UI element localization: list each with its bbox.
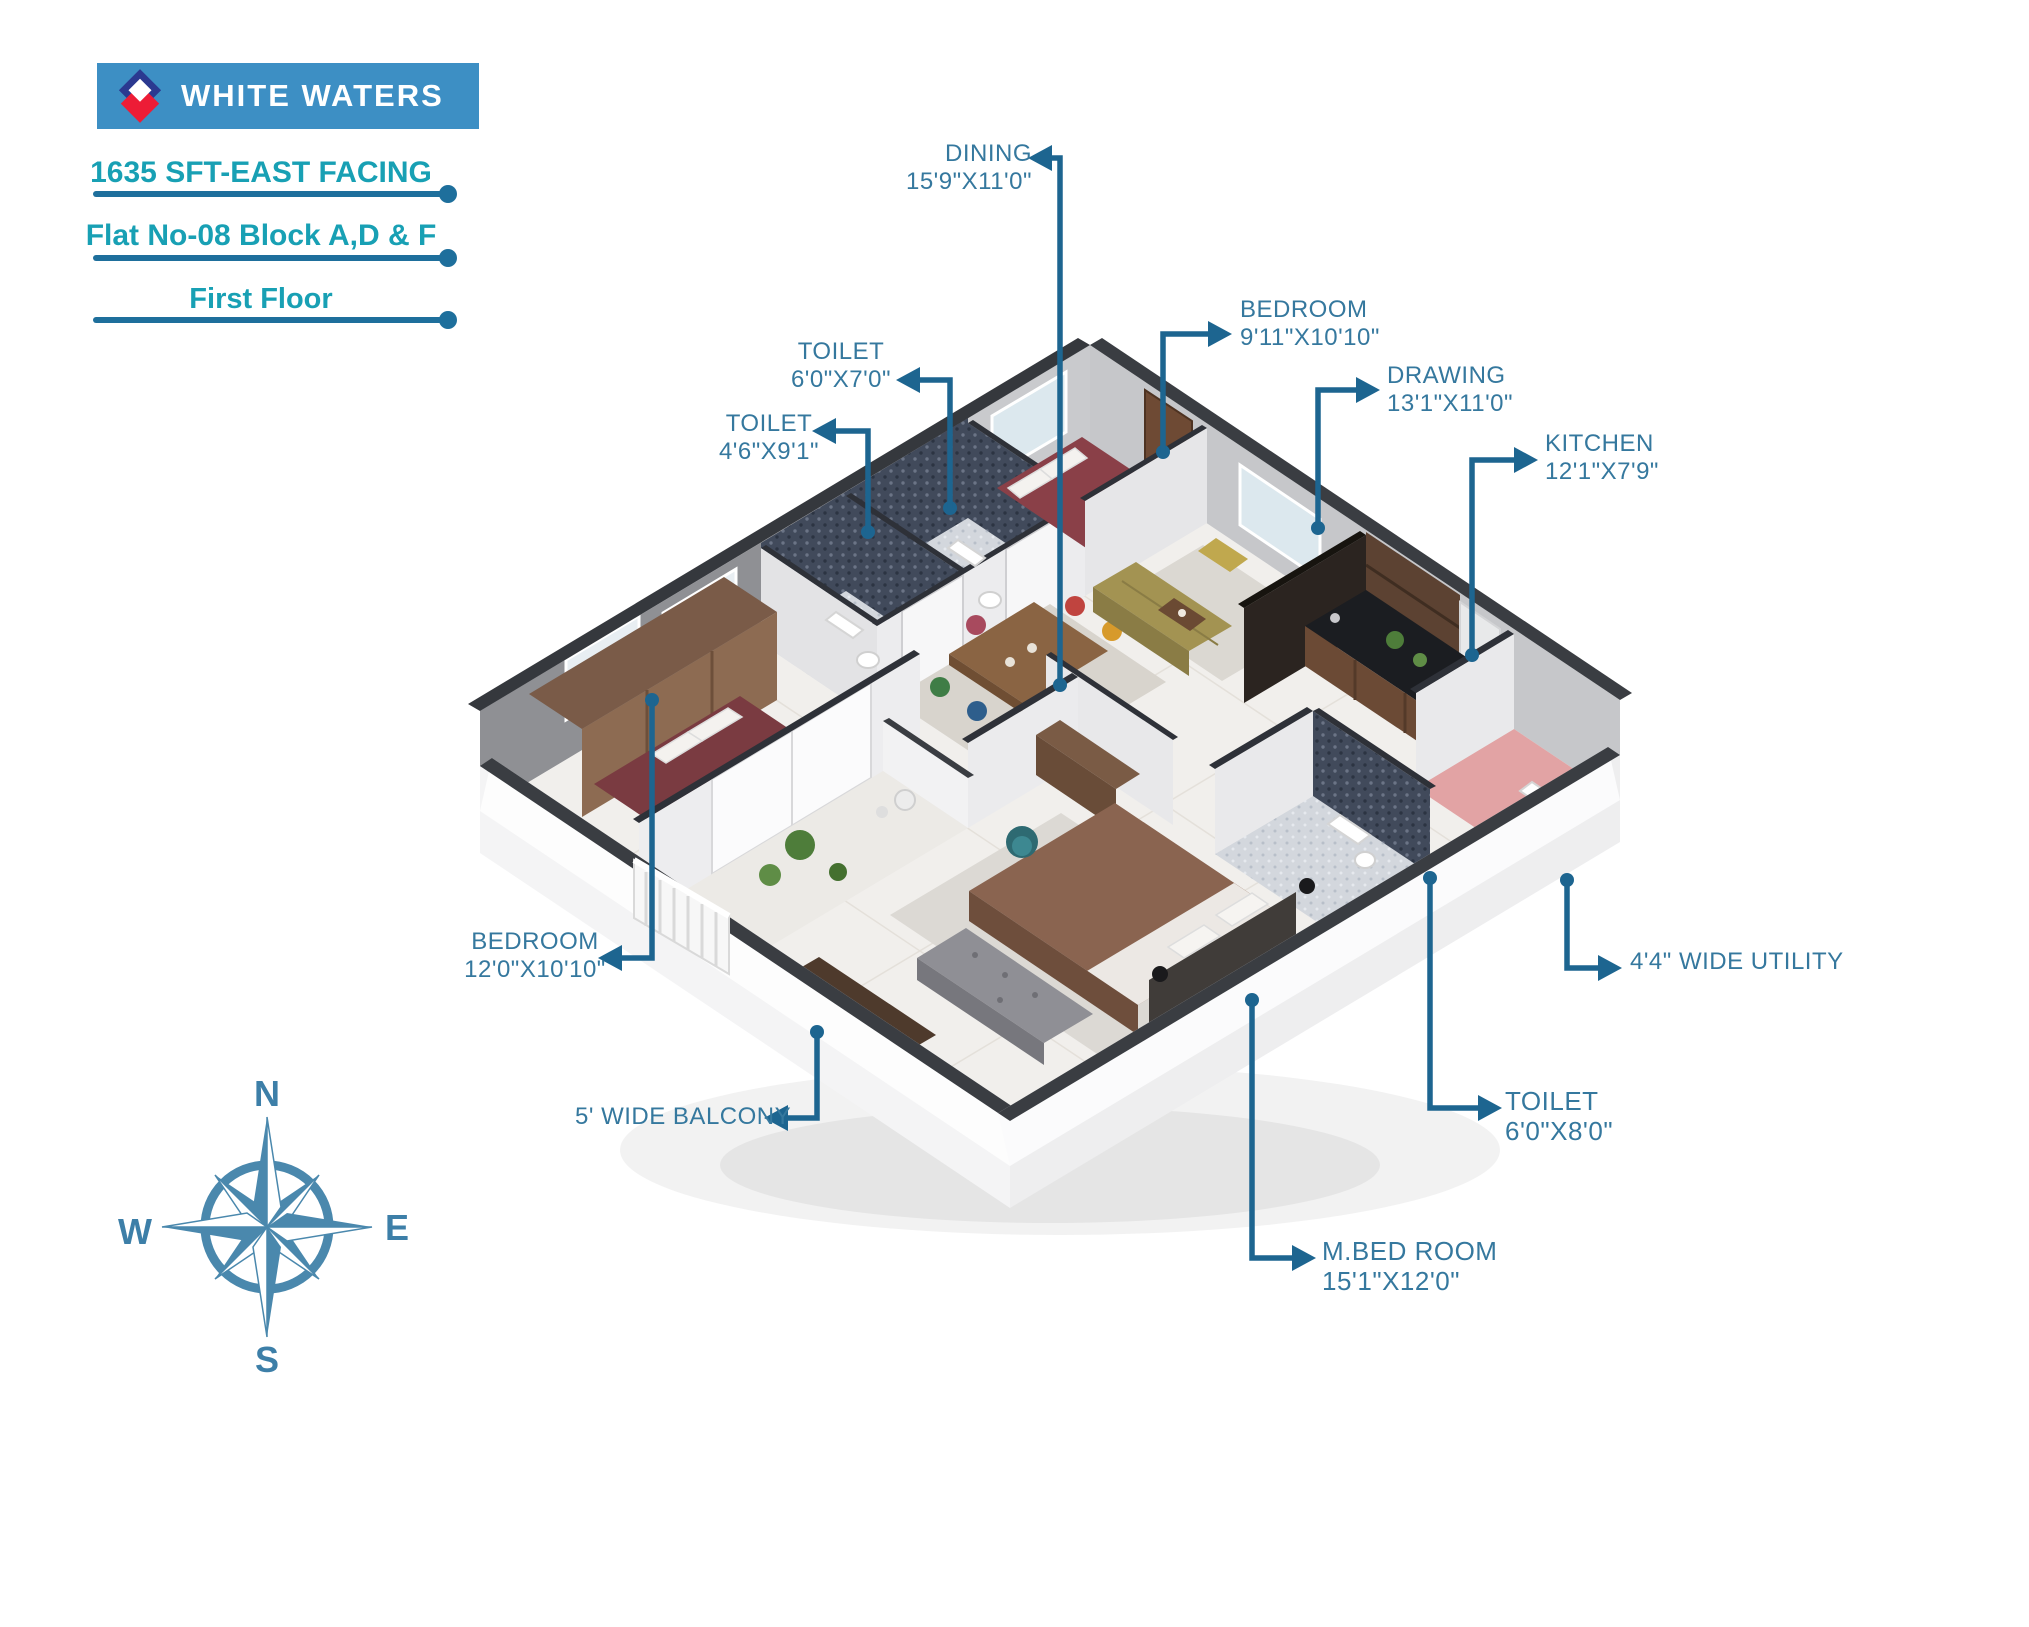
label-toilet-2: TOILET 4'6"X9'1" xyxy=(684,410,854,466)
balcony-chair xyxy=(876,806,888,818)
brand-title: WHITE WATERS xyxy=(181,78,444,114)
header-floor: First Floor xyxy=(75,283,447,316)
toilet-2-wc xyxy=(857,652,879,668)
label-mbed: M.BED ROOM 15'1"X12'0" xyxy=(1322,1236,1497,1296)
leader-utility xyxy=(1560,873,1622,981)
label-balcony: 5' WIDE BALCONY xyxy=(575,1103,791,1131)
bedside-lamp xyxy=(1299,878,1315,894)
label-utility: 4'4" WIDE UTILITY xyxy=(1630,948,1844,976)
kitchen-plant xyxy=(1386,631,1404,649)
brand-banner: WHITE WATERS xyxy=(97,63,479,129)
balcony-plant xyxy=(759,864,781,886)
label-kitchen: KITCHEN 12'1"X7'9" xyxy=(1545,430,1659,486)
header-rule-2 xyxy=(93,255,443,261)
brand-logo-icon xyxy=(117,67,163,125)
balcony-table xyxy=(895,790,915,810)
label-toilet-1: TOILET 6'0"X7'0" xyxy=(756,338,926,394)
compass-west-label: W xyxy=(118,1211,152,1252)
compass-north-label: N xyxy=(254,1073,280,1114)
header-rule-3 xyxy=(93,317,443,323)
page: N E S W WHITE WATERS 1635 SFT-EAST FACIN… xyxy=(0,0,2029,1627)
compass-rose-icon: N E S W xyxy=(95,1072,435,1392)
compass-east-label: E xyxy=(385,1207,409,1248)
toilet-1-wc xyxy=(979,592,1001,608)
label-dining: DINING 15'9"X11'0" xyxy=(830,140,1032,196)
balcony-plant xyxy=(829,863,847,881)
compass-south-label: S xyxy=(255,1339,279,1380)
balcony-plant xyxy=(785,830,815,860)
toilet-3-wc xyxy=(1355,852,1375,868)
label-bedroom-top: BEDROOM 9'11"X10'10" xyxy=(1240,296,1380,352)
bedside-lamp xyxy=(1152,966,1168,982)
header-area-facing: 1635 SFT-EAST FACING xyxy=(75,156,447,190)
header-flat-block: Flat No-08 Block A,D & F xyxy=(75,219,447,253)
label-toilet-3: TOILET 6'0"X8'0" xyxy=(1505,1086,1613,1146)
header-rule-1 xyxy=(93,191,443,197)
label-drawing: DRAWING 13'1"X11'0" xyxy=(1387,362,1513,418)
label-bedroom-left: BEDROOM 12'0"X10'10" xyxy=(420,928,650,984)
